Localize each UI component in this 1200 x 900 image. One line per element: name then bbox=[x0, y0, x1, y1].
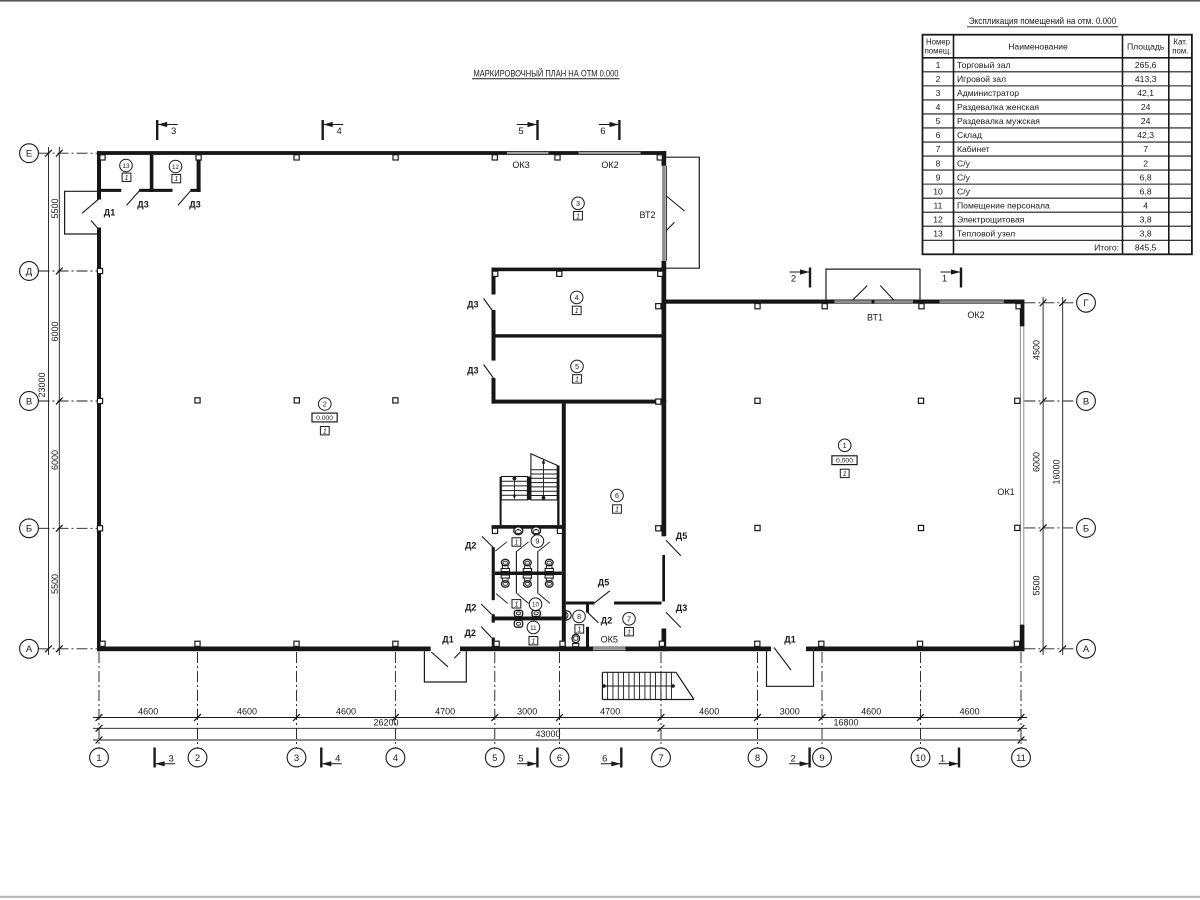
svg-text:4600: 4600 bbox=[336, 707, 356, 717]
svg-text:1: 1 bbox=[514, 601, 518, 608]
svg-text:С/у: С/у bbox=[957, 158, 971, 168]
svg-text:3: 3 bbox=[936, 88, 941, 98]
svg-text:4700: 4700 bbox=[435, 707, 455, 717]
svg-text:7: 7 bbox=[936, 144, 941, 154]
svg-text:42,1: 42,1 bbox=[1137, 88, 1154, 98]
svg-text:Раздевалка мужская: Раздевалка мужская bbox=[957, 116, 1040, 126]
svg-text:Д2: Д2 bbox=[465, 603, 476, 613]
svg-text:7: 7 bbox=[658, 753, 663, 764]
svg-text:1: 1 bbox=[843, 471, 847, 478]
svg-text:Раздевалка женская: Раздевалка женская bbox=[957, 102, 1039, 112]
svg-text:В: В bbox=[1083, 396, 1089, 407]
svg-text:3: 3 bbox=[294, 753, 299, 764]
svg-text:6000: 6000 bbox=[50, 321, 60, 341]
svg-text:Д1: Д1 bbox=[104, 208, 115, 218]
svg-text:2: 2 bbox=[936, 74, 941, 84]
svg-text:6,8: 6,8 bbox=[1140, 186, 1152, 196]
svg-text:1: 1 bbox=[174, 176, 178, 183]
svg-text:8: 8 bbox=[755, 753, 760, 764]
svg-text:4600: 4600 bbox=[699, 707, 719, 717]
svg-text:3: 3 bbox=[576, 199, 580, 208]
svg-text:1: 1 bbox=[514, 540, 518, 547]
svg-text:1: 1 bbox=[843, 441, 847, 450]
svg-text:Тепловой узел: Тепловой узел bbox=[957, 228, 1015, 238]
svg-text:Д3: Д3 bbox=[467, 300, 478, 310]
svg-text:5: 5 bbox=[492, 753, 497, 764]
svg-text:11: 11 bbox=[934, 200, 943, 210]
svg-text:265,6: 265,6 bbox=[1135, 60, 1157, 70]
svg-text:12: 12 bbox=[172, 164, 179, 171]
svg-text:помещ.: помещ. bbox=[925, 47, 952, 56]
svg-text:5500: 5500 bbox=[50, 198, 60, 218]
svg-text:4700: 4700 bbox=[600, 707, 620, 717]
svg-text:Игровой зал: Игровой зал bbox=[957, 74, 1006, 84]
svg-text:Экспликация помещений на отм.: Экспликация помещений на отм. 0.000 bbox=[969, 16, 1117, 26]
svg-text:ОК2: ОК2 bbox=[967, 310, 984, 320]
svg-text:16000: 16000 bbox=[1051, 459, 1061, 484]
svg-text:1: 1 bbox=[627, 629, 631, 636]
svg-text:ОК1: ОК1 bbox=[997, 487, 1014, 497]
svg-text:Д3: Д3 bbox=[137, 200, 148, 210]
svg-text:1: 1 bbox=[942, 273, 947, 284]
svg-text:Номер: Номер bbox=[926, 38, 951, 47]
svg-text:7: 7 bbox=[627, 614, 631, 623]
svg-text:4: 4 bbox=[1143, 200, 1148, 210]
svg-text:Д3: Д3 bbox=[676, 603, 687, 613]
svg-text:6000: 6000 bbox=[1032, 452, 1042, 472]
svg-text:43000: 43000 bbox=[535, 729, 560, 739]
svg-text:Е: Е bbox=[26, 149, 32, 160]
svg-text:5: 5 bbox=[518, 126, 523, 137]
svg-text:4: 4 bbox=[337, 126, 342, 137]
svg-text:5: 5 bbox=[575, 362, 579, 371]
svg-text:3000: 3000 bbox=[780, 707, 800, 717]
svg-text:2: 2 bbox=[790, 754, 795, 765]
svg-text:Итого:: Итого: bbox=[1094, 242, 1119, 252]
svg-text:5: 5 bbox=[936, 116, 941, 126]
svg-text:ОК2: ОК2 bbox=[601, 160, 618, 170]
svg-text:МАРКИРОВОЧНЫЙ ПЛАН НА ОТМ 0.00: МАРКИРОВОЧНЫЙ ПЛАН НА ОТМ 0.000 bbox=[474, 67, 619, 78]
svg-text:24: 24 bbox=[1141, 102, 1151, 112]
svg-text:Д: Д bbox=[26, 266, 33, 277]
svg-text:ОК5: ОК5 bbox=[601, 635, 618, 645]
svg-text:4600: 4600 bbox=[960, 707, 980, 717]
svg-text:2: 2 bbox=[1143, 158, 1148, 168]
svg-text:4500: 4500 bbox=[1032, 340, 1042, 360]
svg-text:Б: Б bbox=[26, 524, 32, 535]
svg-text:1: 1 bbox=[940, 754, 945, 765]
svg-text:10: 10 bbox=[532, 602, 539, 609]
svg-text:ВТ1: ВТ1 bbox=[867, 313, 883, 323]
svg-text:13: 13 bbox=[933, 228, 943, 238]
svg-text:23000: 23000 bbox=[37, 372, 47, 397]
svg-text:5500: 5500 bbox=[1032, 575, 1042, 595]
svg-text:8: 8 bbox=[936, 158, 941, 168]
svg-text:845,5: 845,5 bbox=[1135, 242, 1157, 252]
svg-text:Помещение персонала: Помещение персонала bbox=[957, 200, 1050, 210]
svg-text:1: 1 bbox=[576, 213, 580, 220]
svg-text:42,3: 42,3 bbox=[1137, 130, 1154, 140]
svg-text:0.000: 0.000 bbox=[836, 458, 853, 465]
svg-text:Б: Б bbox=[1083, 523, 1089, 534]
svg-text:4600: 4600 bbox=[237, 707, 257, 717]
svg-text:413,3: 413,3 bbox=[1135, 74, 1157, 84]
svg-text:0.000: 0.000 bbox=[316, 415, 333, 422]
svg-text:6: 6 bbox=[602, 754, 607, 765]
svg-text:Кат.: Кат. bbox=[1174, 38, 1188, 47]
svg-text:1: 1 bbox=[575, 377, 579, 384]
svg-text:2: 2 bbox=[195, 753, 200, 764]
svg-text:3: 3 bbox=[171, 126, 176, 137]
svg-text:2: 2 bbox=[791, 273, 796, 284]
svg-text:26200: 26200 bbox=[373, 717, 398, 727]
svg-text:Склад: Склад bbox=[957, 130, 982, 140]
svg-text:Д5: Д5 bbox=[598, 578, 609, 588]
svg-text:С/у: С/у bbox=[957, 172, 971, 182]
svg-text:7: 7 bbox=[1143, 144, 1148, 154]
svg-text:Торговый зал: Торговый зал bbox=[957, 60, 1011, 70]
svg-text:6: 6 bbox=[615, 491, 619, 500]
svg-text:1: 1 bbox=[531, 638, 535, 645]
svg-text:ВТ2: ВТ2 bbox=[640, 210, 656, 220]
svg-text:1: 1 bbox=[615, 507, 619, 514]
svg-text:Кабинет: Кабинет bbox=[957, 144, 990, 154]
svg-text:6000: 6000 bbox=[50, 450, 60, 470]
svg-text:Г: Г bbox=[1083, 298, 1088, 309]
svg-text:2: 2 bbox=[323, 400, 327, 409]
svg-text:Д5: Д5 bbox=[676, 531, 687, 541]
svg-text:24: 24 bbox=[1141, 116, 1151, 126]
svg-text:ОК3: ОК3 bbox=[512, 160, 529, 170]
svg-text:А: А bbox=[26, 644, 33, 655]
svg-text:Д1: Д1 bbox=[784, 635, 795, 645]
svg-text:1: 1 bbox=[323, 428, 327, 435]
svg-text:1: 1 bbox=[125, 175, 129, 182]
svg-text:11: 11 bbox=[530, 625, 537, 632]
svg-text:Наименование: Наименование bbox=[1008, 42, 1068, 52]
svg-text:4: 4 bbox=[335, 754, 340, 765]
svg-text:Д3: Д3 bbox=[467, 366, 478, 376]
svg-text:Д3: Д3 bbox=[189, 200, 200, 210]
svg-text:10: 10 bbox=[933, 186, 943, 196]
svg-text:4: 4 bbox=[936, 102, 941, 112]
svg-text:4: 4 bbox=[393, 753, 398, 764]
svg-text:10: 10 bbox=[915, 753, 926, 764]
svg-text:Площадь: Площадь bbox=[1127, 42, 1165, 52]
svg-text:Д1: Д1 bbox=[442, 635, 453, 645]
svg-text:1: 1 bbox=[96, 753, 101, 764]
svg-text:В: В bbox=[26, 396, 32, 407]
svg-text:1: 1 bbox=[936, 60, 941, 70]
svg-text:Электрощитовая: Электрощитовая bbox=[957, 214, 1025, 224]
svg-text:5500: 5500 bbox=[50, 574, 60, 594]
svg-text:3,8: 3,8 bbox=[1140, 214, 1152, 224]
svg-text:9: 9 bbox=[936, 172, 941, 182]
svg-text:6,8: 6,8 bbox=[1140, 172, 1152, 182]
svg-text:16800: 16800 bbox=[833, 717, 858, 727]
svg-text:5: 5 bbox=[518, 754, 523, 765]
svg-text:3: 3 bbox=[168, 754, 173, 765]
svg-text:пом.: пом. bbox=[1172, 47, 1188, 56]
svg-text:3000: 3000 bbox=[517, 707, 537, 717]
svg-text:12: 12 bbox=[933, 214, 943, 224]
svg-text:Д2: Д2 bbox=[465, 541, 476, 551]
svg-text:9: 9 bbox=[535, 537, 539, 546]
svg-text:9: 9 bbox=[819, 753, 824, 764]
svg-text:11: 11 bbox=[1016, 753, 1026, 764]
svg-text:6: 6 bbox=[557, 753, 562, 764]
svg-text:1: 1 bbox=[575, 308, 579, 315]
svg-text:1: 1 bbox=[577, 627, 581, 634]
svg-text:4: 4 bbox=[575, 293, 579, 302]
svg-text:Д2: Д2 bbox=[464, 628, 475, 638]
svg-text:А: А bbox=[1083, 644, 1090, 655]
svg-text:13: 13 bbox=[123, 163, 130, 170]
svg-text:6: 6 bbox=[600, 126, 605, 137]
svg-text:6: 6 bbox=[936, 130, 941, 140]
svg-text:3,8: 3,8 bbox=[1140, 228, 1152, 238]
svg-text:4600: 4600 bbox=[861, 707, 881, 717]
svg-text:4600: 4600 bbox=[138, 707, 158, 717]
svg-text:С/у: С/у bbox=[957, 186, 971, 196]
svg-text:Администратор: Администратор bbox=[957, 88, 1019, 98]
svg-text:8: 8 bbox=[577, 612, 581, 621]
svg-text:Д2: Д2 bbox=[601, 615, 612, 625]
